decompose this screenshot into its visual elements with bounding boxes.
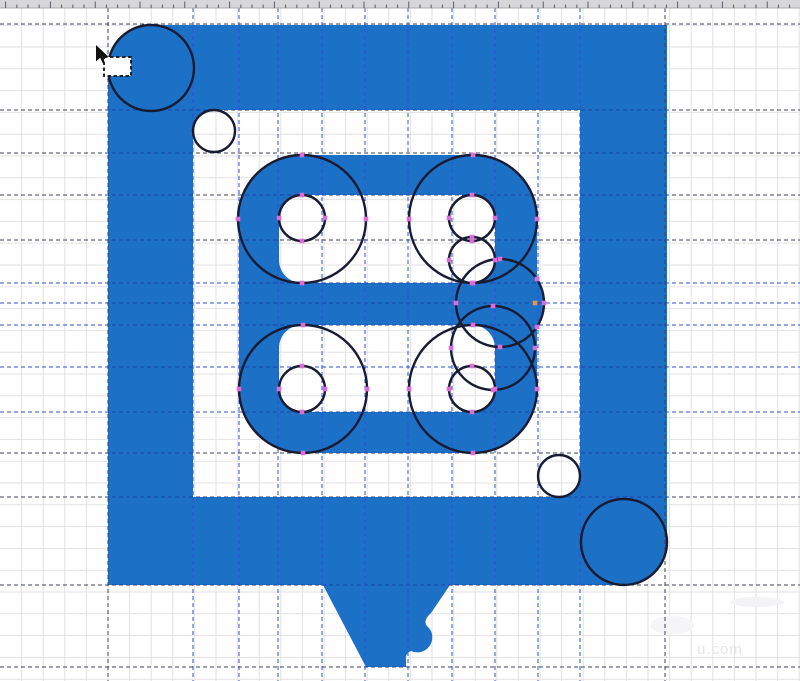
node-marker[interactable] xyxy=(300,410,305,415)
node-marker[interactable] xyxy=(300,239,305,244)
marquee-selection-icon xyxy=(104,57,131,76)
node-marker[interactable] xyxy=(449,346,454,351)
node-marker[interactable] xyxy=(535,387,540,392)
node-marker[interactable] xyxy=(407,217,412,222)
node-marker[interactable] xyxy=(493,216,498,221)
node-marker[interactable] xyxy=(323,216,328,221)
node-marker[interactable] xyxy=(323,387,328,392)
node-marker[interactable] xyxy=(470,193,475,198)
node-marker[interactable] xyxy=(300,364,305,369)
node-marker[interactable] xyxy=(491,388,496,393)
node-marker[interactable] xyxy=(364,217,369,222)
node-marker[interactable] xyxy=(300,281,305,286)
watermark-text: u.com xyxy=(697,641,743,658)
node-marker[interactable] xyxy=(301,451,306,456)
node-marker[interactable] xyxy=(407,387,412,392)
node-marker[interactable] xyxy=(454,301,459,306)
ruler[interactable] xyxy=(0,0,800,8)
node-marker[interactable] xyxy=(470,410,475,415)
node-marker[interactable] xyxy=(498,345,503,350)
node-marker[interactable] xyxy=(491,304,496,309)
node-marker[interactable] xyxy=(237,387,242,392)
node-marker[interactable] xyxy=(493,258,498,263)
node-marker[interactable] xyxy=(535,325,540,330)
node-marker[interactable] xyxy=(236,217,241,222)
node-marker[interactable] xyxy=(471,323,476,328)
node-marker[interactable] xyxy=(470,239,475,244)
node-marker[interactable] xyxy=(301,323,306,328)
node-marker[interactable] xyxy=(447,387,452,392)
node-marker[interactable] xyxy=(542,301,547,306)
node-marker[interactable] xyxy=(300,153,305,158)
node-marker[interactable] xyxy=(471,451,476,456)
node-marker[interactable] xyxy=(535,217,540,222)
watermark-smudge xyxy=(650,616,694,634)
node-marker[interactable] xyxy=(447,216,452,221)
watermark-smudge xyxy=(730,597,784,607)
node-marker[interactable] xyxy=(470,364,475,369)
node-marker[interactable] xyxy=(447,258,452,263)
node-marker[interactable] xyxy=(470,281,475,286)
node-marker[interactable] xyxy=(471,153,476,158)
node-marker[interactable] xyxy=(365,387,370,392)
editor-canvas: u.com xyxy=(0,0,800,681)
ruler-strip[interactable] xyxy=(0,0,800,8)
node-marker[interactable] xyxy=(277,216,282,221)
node-marker[interactable] xyxy=(535,277,540,282)
node-marker[interactable] xyxy=(277,387,282,392)
drawing-area[interactable]: u.com xyxy=(0,0,800,681)
node-marker[interactable] xyxy=(498,257,503,262)
node-marker[interactable] xyxy=(300,193,305,198)
node-marker[interactable] xyxy=(533,301,538,306)
node-marker[interactable] xyxy=(470,235,475,240)
node-marker[interactable] xyxy=(533,346,538,351)
